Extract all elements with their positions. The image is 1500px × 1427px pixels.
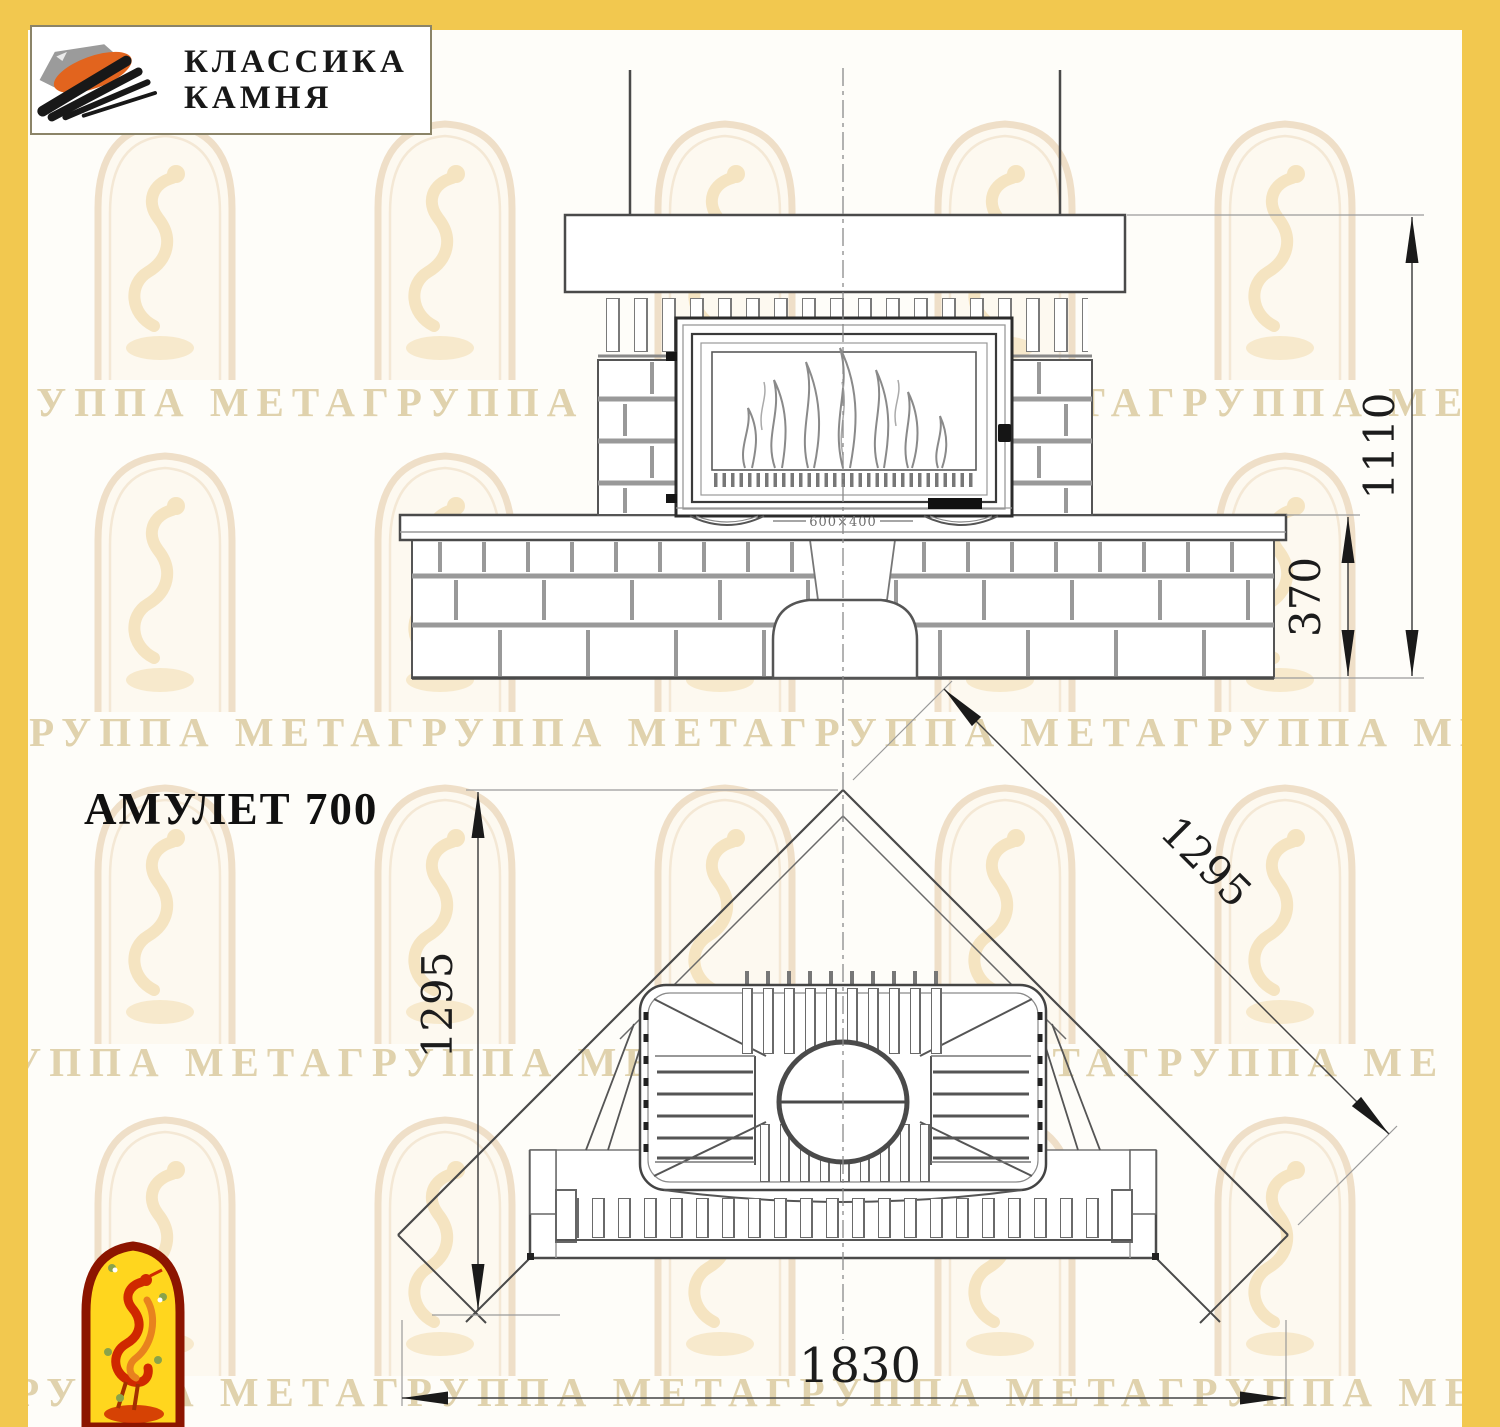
company-name-line1: КЛАССИКА: [184, 44, 408, 80]
firebird-emblem: [86, 1246, 180, 1427]
dim-label-total-height: 1110: [1355, 393, 1404, 500]
company-logo: КЛАССИКА КАМНЯ: [30, 25, 432, 135]
page-border-left: [0, 30, 28, 1427]
model-title: АМУЛЕТ 700: [84, 783, 378, 835]
company-name: КЛАССИКА КАМНЯ: [184, 44, 408, 117]
door-hinge-bottom: [666, 494, 677, 503]
front-arch-keystone: [810, 540, 895, 600]
door-handle: [998, 424, 1011, 442]
company-name-line2: КАМНЯ: [184, 80, 408, 116]
front-arch-opening: [773, 600, 917, 678]
dim-label-plan-width: 1830: [799, 1338, 921, 1394]
stone-logo-icon: [32, 29, 184, 131]
mantel-shelf: [565, 215, 1125, 292]
technical-drawing-svg: 600×400: [0, 0, 1500, 1427]
dim-label-plan-depth: 1295: [413, 952, 462, 1059]
door-latch: [928, 498, 982, 509]
dim-label-bench-height: 370: [1281, 557, 1330, 637]
page-border-right: [1462, 30, 1500, 1427]
firebox-insert: 600×400: [666, 318, 1012, 530]
page: ГРУППА МЕТАГРУППА МЕТАГРУППА МЕТАГРУППА …: [0, 0, 1500, 1427]
door-hinge-top: [666, 352, 677, 361]
